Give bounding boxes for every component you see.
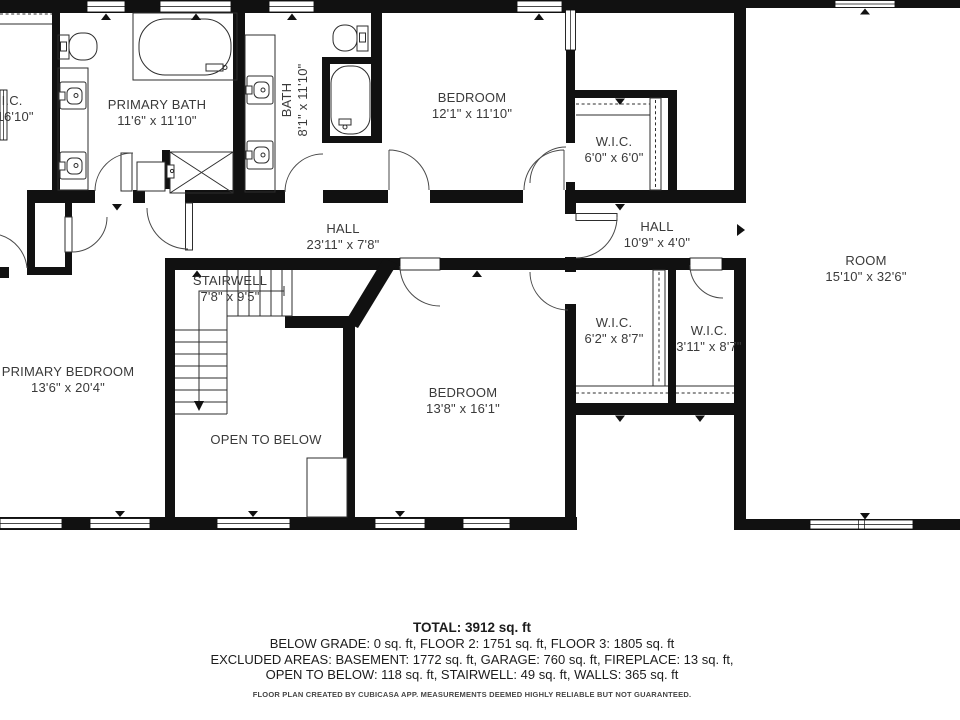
room-name: BEDROOM bbox=[432, 90, 512, 106]
total-area: TOTAL: 3912 sq. ft bbox=[0, 620, 944, 636]
room-label-bedroom-1: BEDROOM 12'1" x 11'10" bbox=[432, 90, 512, 122]
room-label-primary-bath: PRIMARY BATH 11'6" x 11'10" bbox=[108, 97, 206, 129]
room-name: W.I.C. bbox=[584, 134, 643, 150]
room-dims: 3'11" x 8'7" bbox=[676, 339, 742, 355]
room-label-primary-bedroom: PRIMARY BEDROOM 13'6" x 20'4" bbox=[2, 364, 135, 396]
room-dims: 6'2" x 8'7" bbox=[584, 331, 643, 347]
room-label-bath: BATH 8'1" x 11'10" bbox=[279, 64, 311, 137]
room-name: BEDROOM bbox=[426, 385, 500, 401]
room-name: W.I.C. bbox=[676, 323, 742, 339]
room-name: ROOM bbox=[825, 253, 906, 269]
disclaimer: FLOOR PLAN CREATED BY CUBICASA APP. MEAS… bbox=[0, 690, 944, 699]
floor-plan-page: W.I.C. x 16'10" PRIMARY BATH 11'6" x 11'… bbox=[0, 0, 960, 720]
room-name: W.I.C. bbox=[584, 315, 643, 331]
room-dims: 13'6" x 20'4" bbox=[2, 380, 135, 396]
stairs bbox=[175, 270, 347, 517]
room-label-wic-3: W.I.C. 6'2" x 8'7" bbox=[584, 315, 643, 347]
room-name: HALL bbox=[307, 221, 380, 237]
room-label-wic-2: W.I.C. 6'0" x 6'0" bbox=[584, 134, 643, 166]
fireplace-chimney bbox=[307, 458, 347, 517]
room-name: STAIRWELL bbox=[193, 273, 267, 289]
room-dims: 13'8" x 16'1" bbox=[426, 401, 500, 417]
room-label-hall-1: HALL 23'11" x 7'8" bbox=[307, 221, 380, 253]
room-label-room: ROOM 15'10" x 32'6" bbox=[825, 253, 906, 285]
area-summary: TOTAL: 3912 sq. ft BELOW GRADE: 0 sq. ft… bbox=[0, 620, 944, 699]
excluded-areas-2: OPEN TO BELOW: 118 sq. ft, STAIRWELL: 49… bbox=[0, 667, 944, 683]
room-name: PRIMARY BEDROOM bbox=[2, 364, 135, 380]
room-name: W.I.C. bbox=[0, 93, 34, 109]
room-dims: 8'1" x 11'10" bbox=[295, 64, 311, 137]
room-dims: 6'0" x 6'0" bbox=[584, 150, 643, 166]
room-dims: 15'10" x 32'6" bbox=[825, 269, 906, 285]
room-name: BATH bbox=[279, 64, 295, 137]
room-name: PRIMARY BATH bbox=[108, 97, 206, 113]
room-dims: 23'11" x 7'8" bbox=[307, 237, 380, 253]
hall-to-room-arrow bbox=[737, 224, 745, 236]
room-label-wic-4: W.I.C. 3'11" x 8'7" bbox=[676, 323, 742, 355]
excluded-areas-1: EXCLUDED AREAS: BASEMENT: 1772 sq. ft, G… bbox=[0, 652, 944, 668]
room-dims: 12'1" x 11'10" bbox=[432, 106, 512, 122]
floor-areas: BELOW GRADE: 0 sq. ft, FLOOR 2: 1751 sq.… bbox=[0, 636, 944, 652]
room-dims: 10'9" x 4'0" bbox=[624, 235, 690, 251]
room-name: HALL bbox=[624, 219, 690, 235]
room-label-open-to-below: OPEN TO BELOW bbox=[210, 432, 321, 448]
room-label-hall-2: HALL 10'9" x 4'0" bbox=[624, 219, 690, 251]
room-dims: 7'8" x 9'5" bbox=[193, 289, 267, 305]
room-label-stairwell: STAIRWELL 7'8" x 9'5" bbox=[193, 273, 267, 305]
room-name: OPEN TO BELOW bbox=[210, 432, 321, 448]
room-label-bedroom-2: BEDROOM 13'8" x 16'1" bbox=[426, 385, 500, 417]
room-dims: 11'6" x 11'10" bbox=[108, 113, 206, 129]
room-label-wic-left: W.I.C. x 16'10" bbox=[0, 93, 34, 125]
room-dims: x 16'10" bbox=[0, 109, 34, 125]
